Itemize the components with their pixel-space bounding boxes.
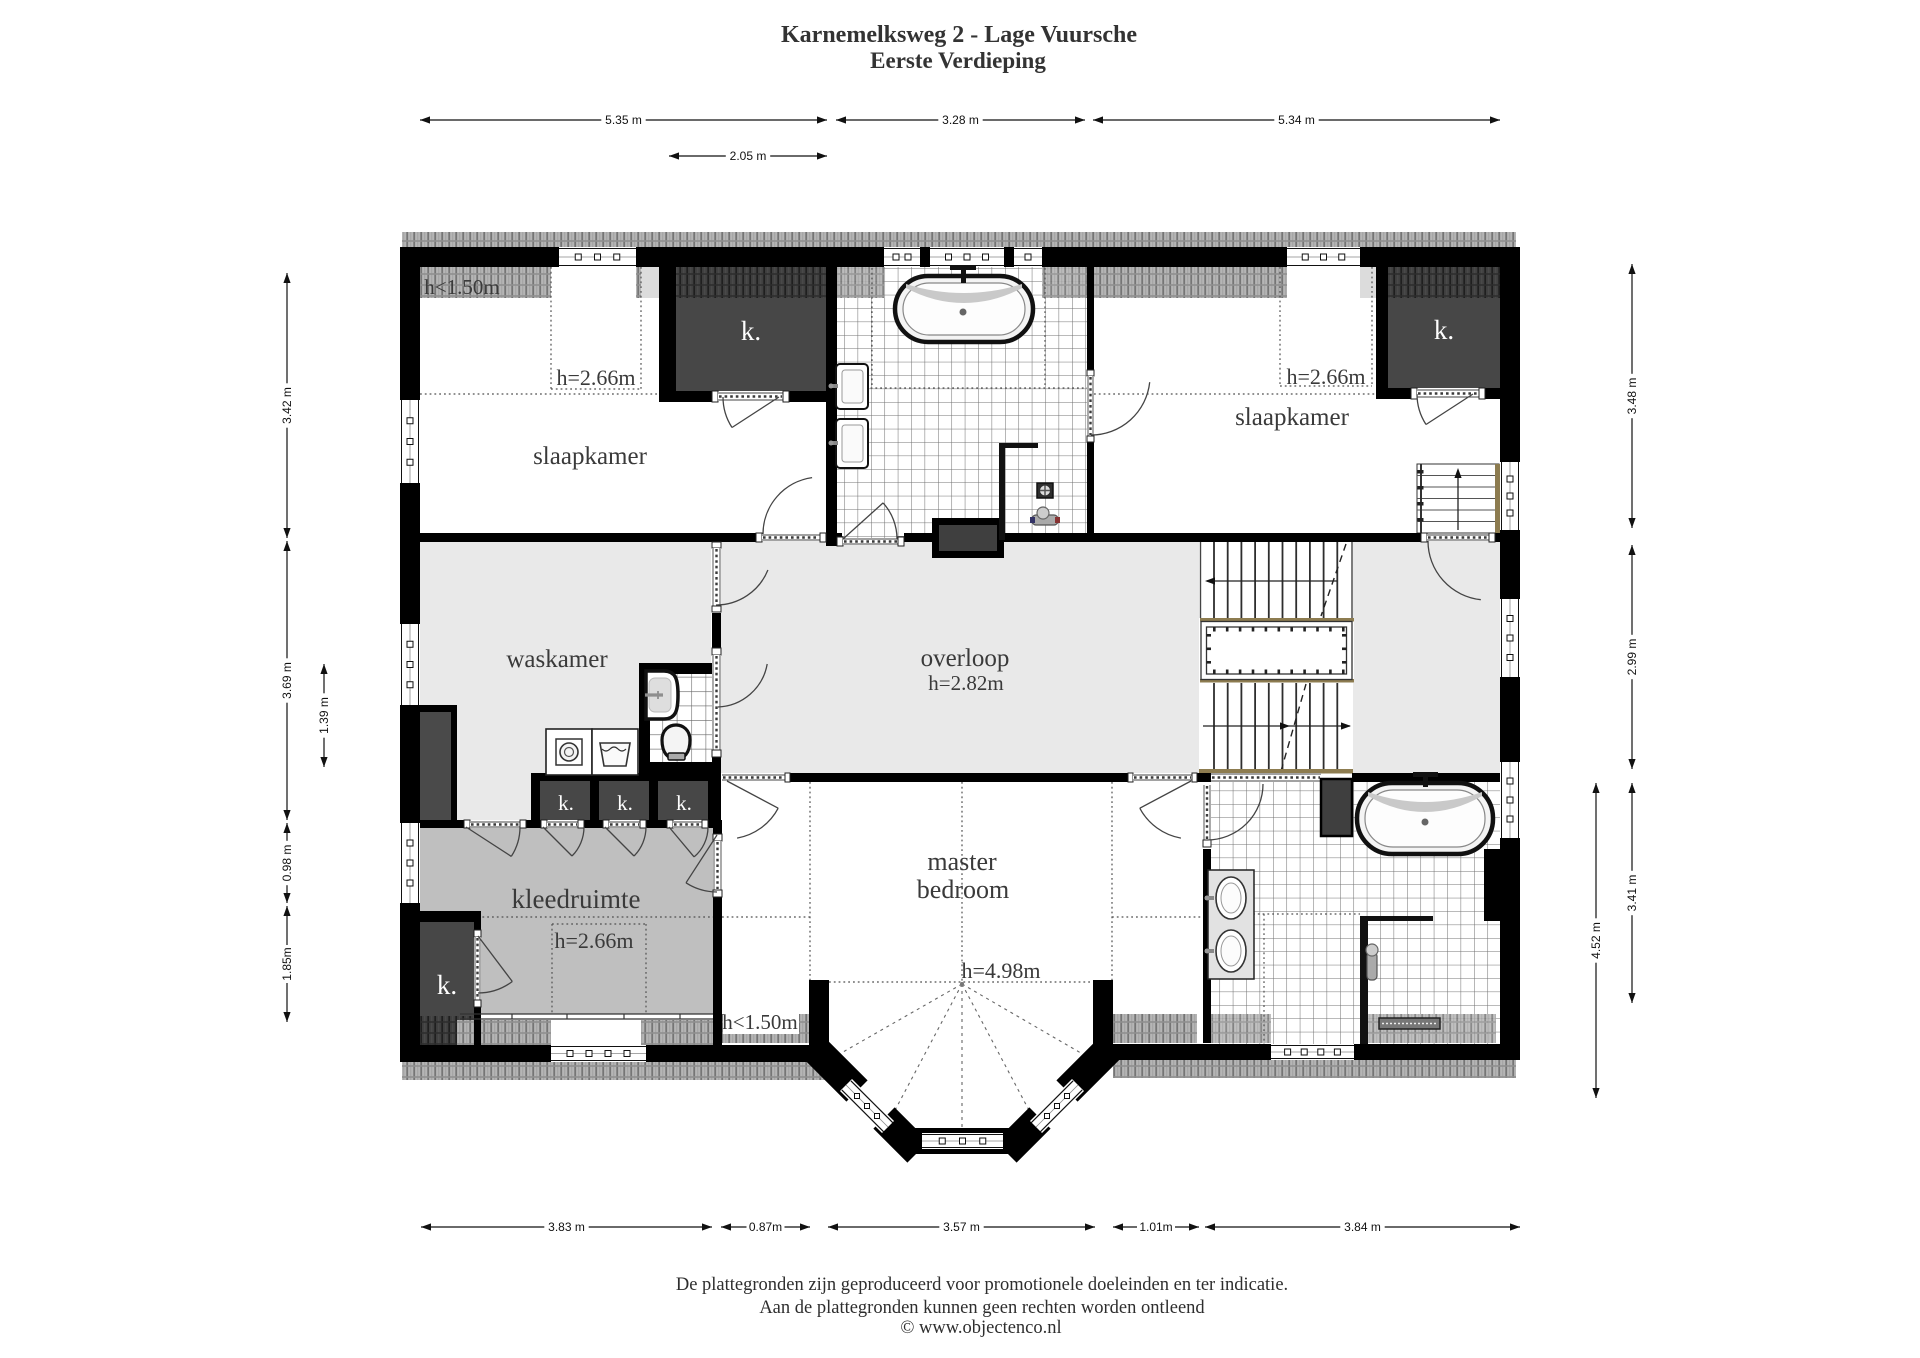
svg-text:0.87m: 0.87m — [749, 1220, 782, 1234]
svg-text:h=2.66m: h=2.66m — [554, 928, 633, 953]
svg-text:4.52 m: 4.52 m — [1589, 922, 1603, 959]
svg-text:2.99 m: 2.99 m — [1625, 639, 1639, 676]
svg-text:3.83 m: 3.83 m — [548, 1220, 585, 1234]
svg-text:2.05 m: 2.05 m — [730, 149, 767, 163]
svg-text:0.98 m: 0.98 m — [280, 845, 294, 882]
svg-text:h=2.66m: h=2.66m — [556, 365, 635, 390]
svg-text:3.48 m: 3.48 m — [1625, 378, 1639, 415]
svg-text:5.35 m: 5.35 m — [605, 113, 642, 127]
svg-text:bedroom: bedroom — [917, 875, 1009, 904]
svg-text:Karnemelksweg 2 - Lage Vuursch: Karnemelksweg 2 - Lage Vuursche — [781, 22, 1137, 48]
svg-text:3.41 m: 3.41 m — [1625, 875, 1639, 912]
svg-text:k.: k. — [741, 316, 761, 346]
svg-text:3.69 m: 3.69 m — [280, 662, 294, 699]
svg-text:master: master — [927, 847, 997, 876]
svg-text:De plattegronden zijn geproduc: De plattegronden zijn geproduceerd voor … — [676, 1275, 1288, 1295]
svg-text:3.42 m: 3.42 m — [280, 387, 294, 424]
svg-text:© www.objectenco.nl: © www.objectenco.nl — [900, 1318, 1061, 1338]
svg-text:3.28 m: 3.28 m — [942, 113, 979, 127]
svg-text:3.84 m: 3.84 m — [1344, 1220, 1381, 1234]
svg-text:k.: k. — [676, 791, 692, 815]
svg-text:h=4.98m: h=4.98m — [961, 958, 1040, 983]
svg-text:slaapkamer: slaapkamer — [533, 443, 648, 470]
svg-text:1.85m: 1.85m — [280, 947, 294, 980]
svg-text:3.57 m: 3.57 m — [943, 1220, 980, 1234]
svg-text:h=2.66m: h=2.66m — [1286, 364, 1365, 389]
svg-text:Aan de plattegronden kunnen ge: Aan de plattegronden kunnen geen rechten… — [759, 1298, 1205, 1318]
svg-text:1.39 m: 1.39 m — [317, 697, 331, 734]
svg-text:Eerste Verdieping: Eerste Verdieping — [870, 48, 1046, 73]
svg-text:kleedruimte: kleedruimte — [512, 884, 641, 914]
svg-text:1.01m: 1.01m — [1139, 1220, 1172, 1234]
svg-text:overloop: overloop — [921, 645, 1010, 672]
svg-text:h<1.50m: h<1.50m — [424, 275, 499, 299]
svg-text:waskamer: waskamer — [506, 646, 608, 673]
svg-text:5.34 m: 5.34 m — [1278, 113, 1315, 127]
svg-text:h=2.82m: h=2.82m — [928, 671, 1003, 695]
svg-text:h<1.50m: h<1.50m — [722, 1010, 797, 1034]
svg-text:k.: k. — [617, 791, 633, 815]
svg-text:slaapkamer: slaapkamer — [1235, 404, 1350, 431]
svg-text:k.: k. — [437, 970, 457, 1000]
svg-text:k.: k. — [558, 791, 574, 815]
svg-text:k.: k. — [1434, 315, 1454, 345]
